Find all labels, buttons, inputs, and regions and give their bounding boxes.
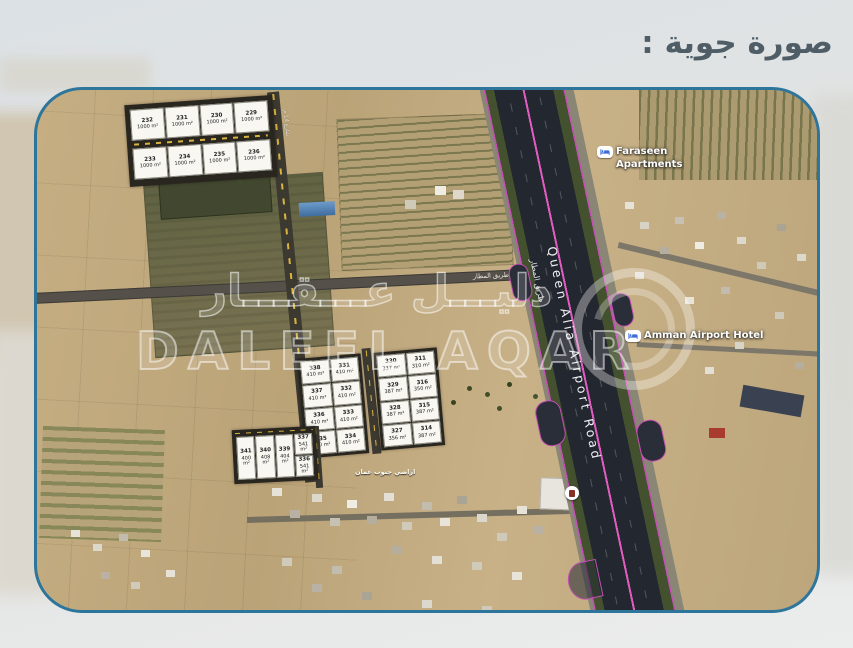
parcel-area: 410 m²: [338, 393, 356, 400]
parcel-area: 400 m²: [238, 456, 255, 467]
parcel-cell: 337410 m²: [302, 383, 332, 408]
parcel-area: 310 m²: [412, 363, 430, 370]
parcel-area: 350 m²: [414, 386, 432, 393]
parcel-area: 387 m²: [416, 409, 434, 416]
parcel-cell: 327356 m²: [382, 423, 412, 448]
orchard: [336, 113, 513, 271]
parcel-area: 1000 m²: [244, 156, 266, 162]
parcel-area: 410 m²: [310, 419, 328, 426]
page-title: صورة جوية :: [641, 25, 833, 61]
lodging-pill: [597, 146, 613, 158]
aerial-map: 300 م عن طريق المطار شارع 14 م شارع 12 م…: [34, 87, 820, 613]
parcel-area: 541 m²: [297, 464, 313, 475]
parcel-cell: 316350 m²: [408, 374, 438, 399]
parcel-cell: 2301000 m²: [199, 103, 235, 136]
parcel-area: 408 m²: [257, 455, 274, 466]
parcel-cell: 311310 m²: [405, 351, 435, 376]
parcel-area: 337 m²: [382, 366, 400, 373]
parcel-cell: 340408 m²: [255, 435, 276, 479]
area-label: اراضي جنوب عمان: [355, 468, 415, 476]
parcel-area: 1000 m²: [140, 163, 162, 169]
poi-amman-airport-hotel: Amman Airport Hotel: [625, 330, 763, 343]
parcel-area: 387 m²: [418, 432, 436, 439]
parcel-area: 1000 m²: [206, 119, 228, 125]
highway-ramp: [533, 398, 568, 448]
parcel-block-north: 2321000 m² 2311000 m² 2301000 m² 2291000…: [124, 95, 277, 187]
solar-panels: [740, 385, 805, 417]
building-cluster-east: [625, 202, 634, 209]
blue-roof-warehouse: [299, 201, 336, 217]
bed-icon: [628, 332, 638, 340]
parcel-cell: 314387 m²: [412, 420, 442, 445]
parcel-cell: 315387 m²: [410, 397, 440, 422]
poi-faraseen-apartments: Faraseen Apartments: [597, 146, 682, 171]
red-roof-building: [709, 428, 725, 438]
poi-label: Amman Airport Hotel: [644, 330, 763, 343]
parcel-area: 410 m²: [340, 417, 358, 424]
parcel-cell: 337541 m²: [294, 433, 313, 455]
crop-rows-field: [39, 426, 165, 542]
building-cluster-south: [272, 488, 282, 496]
parcel-area: 541 m²: [295, 442, 311, 453]
u-turn-loop: [564, 559, 603, 603]
parcel-cell: 2341000 m²: [167, 144, 203, 177]
parcel-cell: 332410 m²: [331, 380, 361, 405]
parcel-cell: 2291000 m²: [234, 100, 270, 133]
fuel-icon: [569, 490, 575, 497]
parcel-area: 410 m²: [306, 372, 324, 379]
parcel-area: 1000 m²: [174, 161, 196, 167]
parcel-cell: 341400 m²: [236, 436, 257, 480]
parcel-area: 1000 m²: [241, 117, 263, 123]
parcel-block-south: 341400 m² 340408 m² 339404 m² 337541 m² …: [232, 426, 319, 484]
parcel-cell: 329387 m²: [378, 376, 408, 401]
parcel-cell: 338410 m²: [300, 359, 330, 384]
parcel-area: 410 m²: [336, 369, 354, 376]
farm-building: [435, 186, 446, 195]
parcel-cell: 2361000 m²: [236, 139, 272, 172]
parcel-cell: 336541 m²: [295, 455, 314, 477]
tree-cluster: [467, 386, 472, 391]
lodging-pill: [625, 330, 641, 342]
fuel-station-marker: [565, 486, 579, 500]
parcel-cell: 330337 m²: [376, 353, 406, 378]
parcel-cell: 331410 m²: [329, 357, 359, 382]
highway-ramp: [634, 417, 668, 463]
parcel-cell: 2331000 m²: [132, 146, 168, 179]
bed-icon: [600, 148, 610, 156]
parcel-cell: 2311000 m²: [164, 105, 200, 138]
parcel-area: 410 m²: [308, 395, 326, 402]
parcel-cell: 2321000 m²: [130, 108, 166, 141]
poi-label: Apartments: [616, 159, 682, 172]
poi-label: Faraseen: [616, 146, 682, 159]
parcel-area: 1000 m²: [209, 158, 231, 164]
parcel-cell: 334410 m²: [336, 428, 366, 453]
parcel-area: 404 m²: [277, 454, 294, 465]
parcel-area: 356 m²: [388, 435, 406, 442]
parcel-area: 410 m²: [342, 440, 360, 447]
parcel-area: 1000 m²: [172, 122, 194, 128]
parcel-cell: 333410 m²: [334, 404, 364, 429]
parcel-cell: 339404 m²: [275, 434, 296, 478]
parcel-area: 387 m²: [384, 389, 402, 396]
parcel-block-mid-right: 330337 m² 311310 m² 329387 m² 316350 m² …: [373, 347, 445, 450]
parcel-cell: 328387 m²: [380, 400, 410, 425]
parcel-cell: 2351000 m²: [202, 142, 238, 175]
parcel-area: 1000 m²: [137, 124, 159, 130]
parcel-split-column: 337541 m² 336541 m²: [294, 433, 314, 477]
building-cluster-west: [71, 530, 80, 537]
daleel-aqar-logo-mark: [573, 268, 695, 390]
parcel-area: 387 m²: [386, 412, 404, 419]
